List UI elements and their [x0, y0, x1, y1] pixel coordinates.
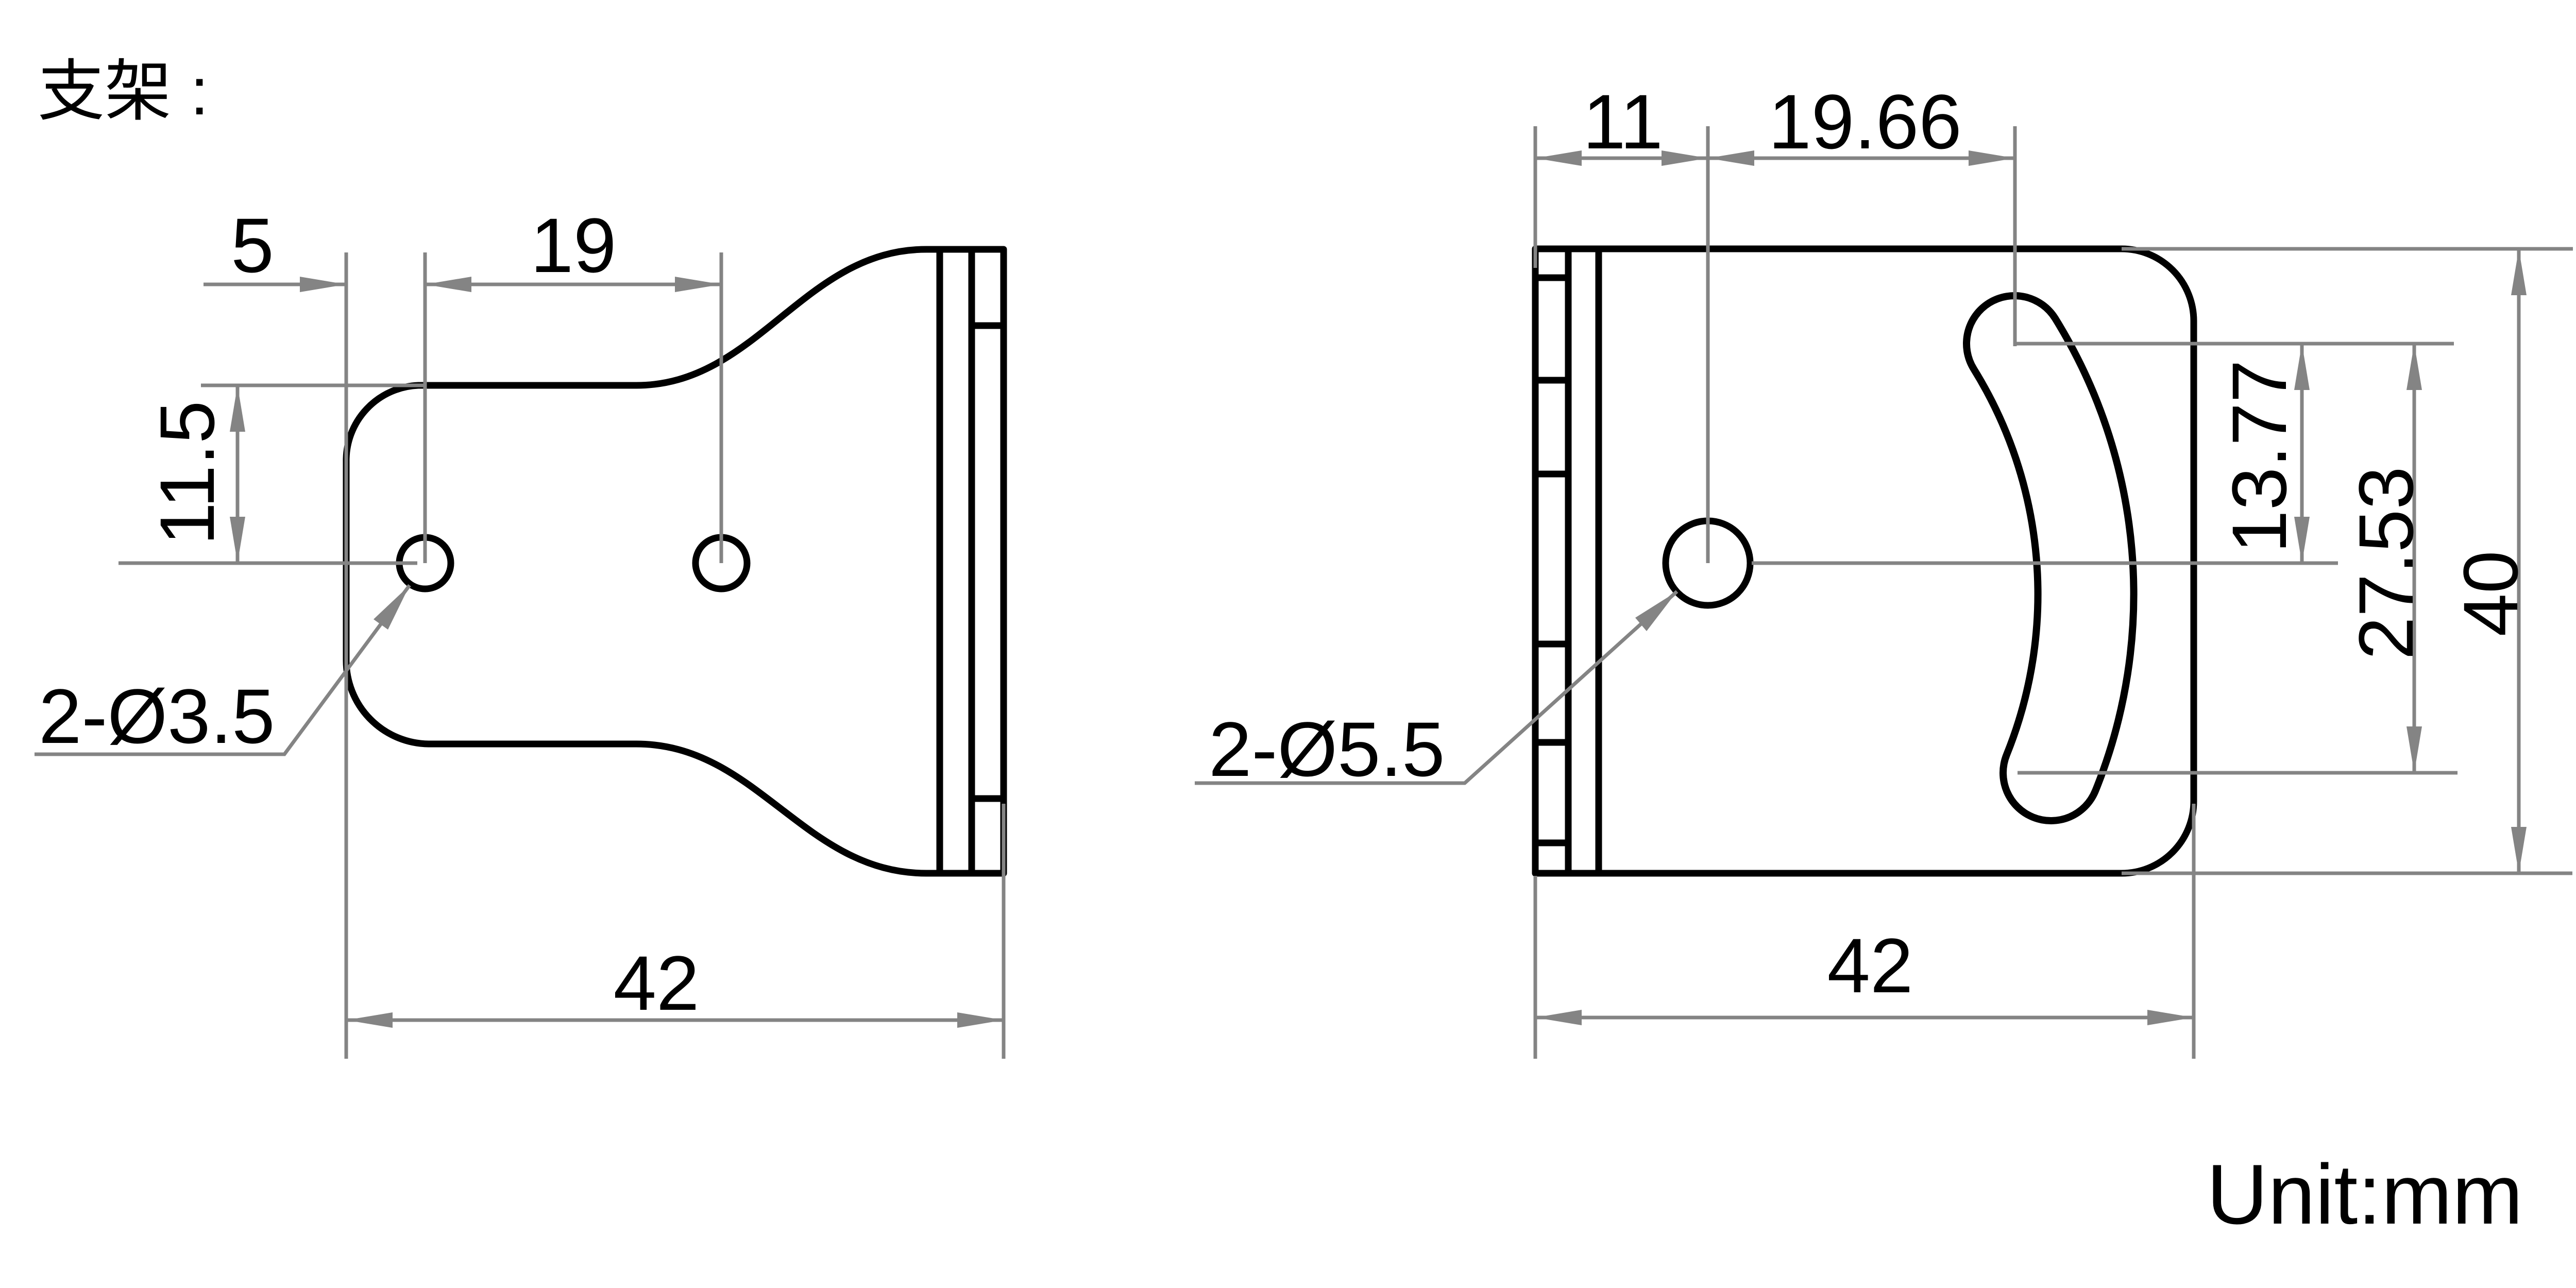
arrow-leader-icon	[374, 585, 410, 630]
labels: 支架 : 5 19 11.5 2-Ø3.5 42 11 19.66 13.77 …	[38, 54, 2534, 1242]
arrow-right-icon	[2147, 1010, 2194, 1025]
dim-label-42-left: 42	[614, 940, 700, 1026]
left-view	[346, 249, 1004, 873]
dim-label-27-53: 27.53	[2343, 466, 2429, 659]
left-view-outline	[346, 249, 1004, 873]
arrow-left-icon	[1535, 150, 1582, 166]
dim-label-11-5: 11.5	[144, 401, 230, 546]
arrow-right-icon	[300, 277, 346, 292]
arrow-right-icon	[675, 277, 721, 292]
arrow-up-icon	[2511, 249, 2527, 295]
arrow-left-icon	[1535, 1010, 1582, 1025]
arrow-left-icon	[425, 277, 471, 292]
arrow-right-icon	[957, 1012, 1004, 1028]
arrow-down-icon	[2406, 726, 2422, 773]
dim-label-11: 11	[1583, 78, 1663, 165]
left-view-dimensions	[35, 252, 1004, 1059]
dim-label-19-66: 19.66	[1768, 78, 1961, 165]
dim-label-40: 40	[2447, 551, 2534, 637]
bracket-technical-drawing: 支架 : 5 19 11.5 2-Ø3.5 42 11 19.66 13.77 …	[0, 0, 2576, 1288]
arrow-right-icon	[1969, 150, 2015, 166]
unit-label: Unit:mm	[2207, 1147, 2523, 1242]
arrow-left-icon	[1708, 150, 1754, 166]
hole-callout-label-right: 2-Ø5.5	[1209, 706, 1445, 792]
arrow-down-icon	[2511, 827, 2527, 873]
arrow-down-icon	[230, 517, 245, 563]
hole-callout-label-left: 2-Ø3.5	[39, 673, 275, 759]
dim-label-5: 5	[231, 202, 274, 289]
drawing-page: 支架 : 5 19 11.5 2-Ø3.5 42 11 19.66 13.77 …	[0, 0, 2576, 1288]
dim-label-19: 19	[531, 202, 617, 289]
arrow-up-icon	[2406, 344, 2422, 390]
dim-label-42-right: 42	[1827, 922, 1913, 1009]
page-title: 支架 :	[38, 54, 209, 129]
dim-label-13-77: 13.77	[2216, 360, 2302, 553]
arrow-right-icon	[1662, 150, 1708, 166]
arrow-up-icon	[230, 385, 245, 432]
arrow-left-icon	[346, 1012, 393, 1028]
